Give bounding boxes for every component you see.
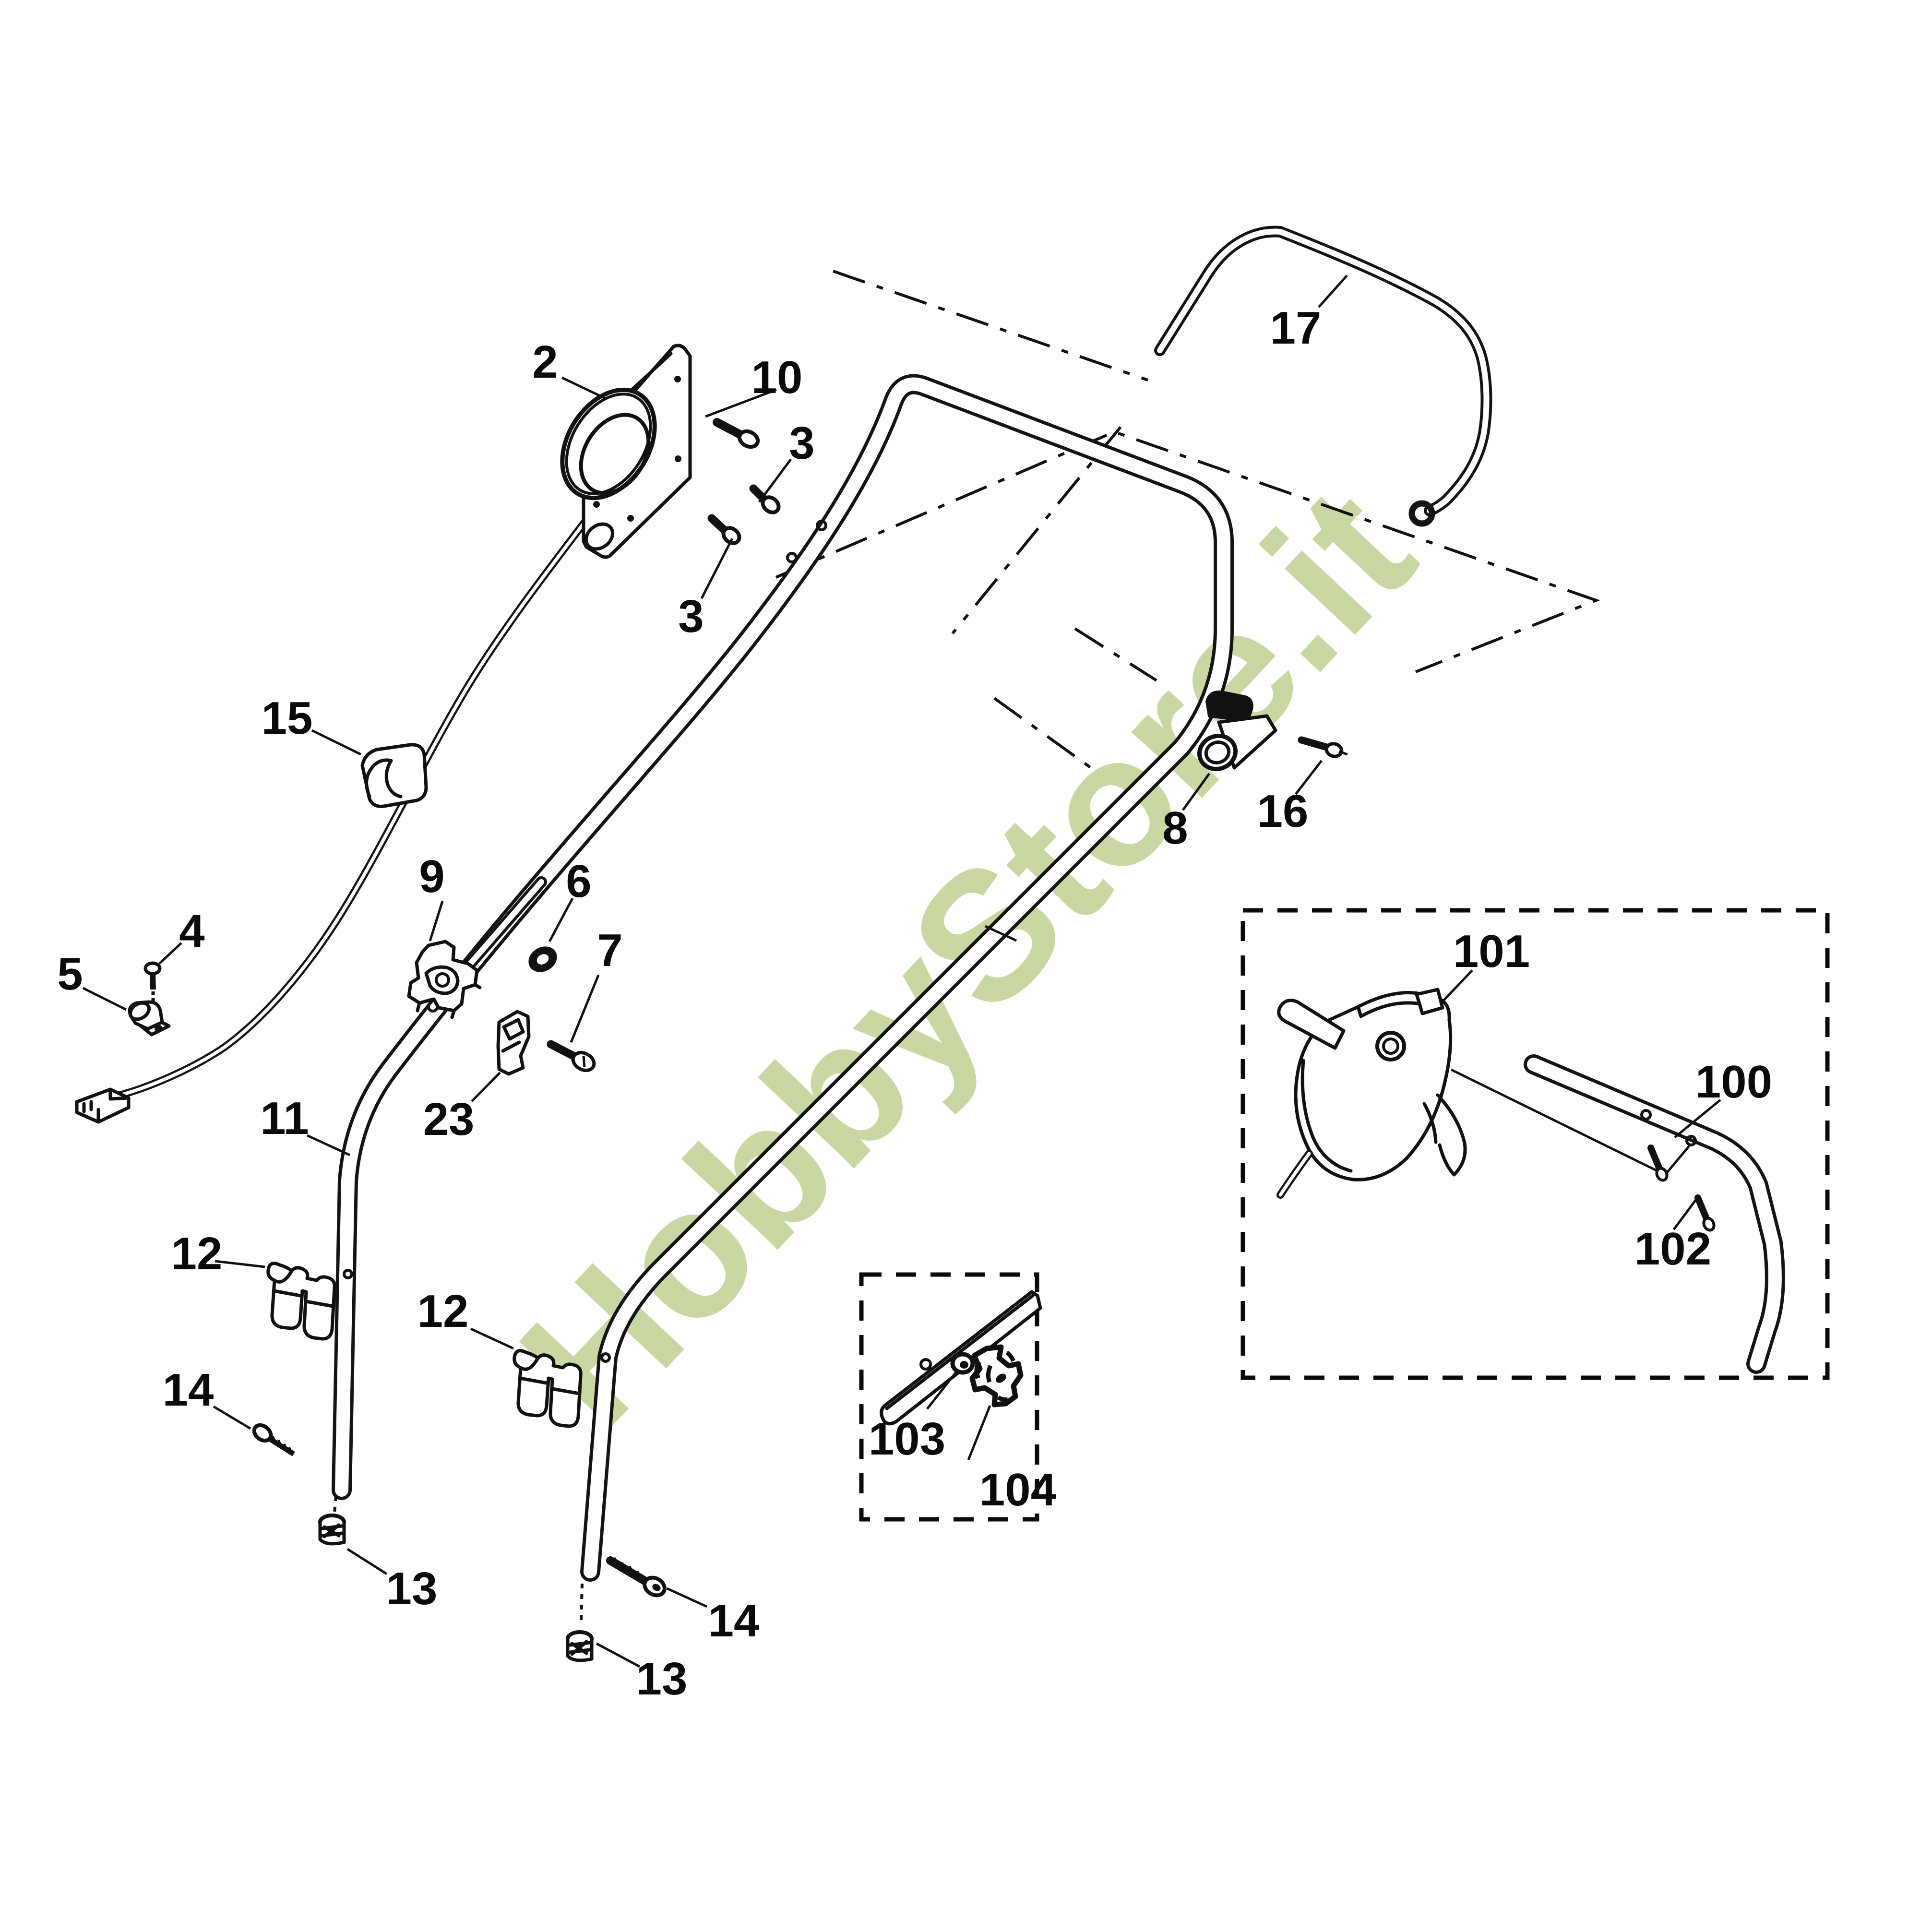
svg-text:6: 6 [566, 856, 591, 907]
svg-text:2: 2 [532, 336, 558, 388]
svg-text:14: 14 [708, 1595, 760, 1646]
svg-text:12: 12 [417, 1286, 469, 1337]
svg-text:14: 14 [163, 1364, 214, 1416]
svg-text:10: 10 [751, 352, 803, 403]
svg-text:4: 4 [179, 906, 204, 957]
svg-text:103: 103 [869, 1413, 945, 1465]
svg-text:5: 5 [57, 948, 83, 1000]
svg-text:3: 3 [789, 417, 814, 469]
svg-text:100: 100 [1695, 1056, 1772, 1108]
svg-text:12: 12 [171, 1228, 223, 1279]
svg-text:15: 15 [262, 692, 313, 744]
svg-text:101: 101 [1453, 926, 1530, 977]
svg-text:7: 7 [597, 925, 622, 976]
svg-text:9: 9 [419, 851, 444, 902]
svg-text:13: 13 [386, 1563, 438, 1614]
svg-text:8: 8 [1162, 802, 1188, 854]
svg-text:3: 3 [678, 591, 704, 642]
svg-text:23: 23 [423, 1094, 475, 1145]
svg-text:104: 104 [979, 1464, 1056, 1515]
svg-text:13: 13 [636, 1653, 688, 1705]
svg-text:102: 102 [1634, 1223, 1711, 1275]
svg-text:17: 17 [1270, 302, 1322, 354]
svg-text:11: 11 [260, 1093, 309, 1144]
svg-text:16: 16 [1257, 786, 1309, 837]
